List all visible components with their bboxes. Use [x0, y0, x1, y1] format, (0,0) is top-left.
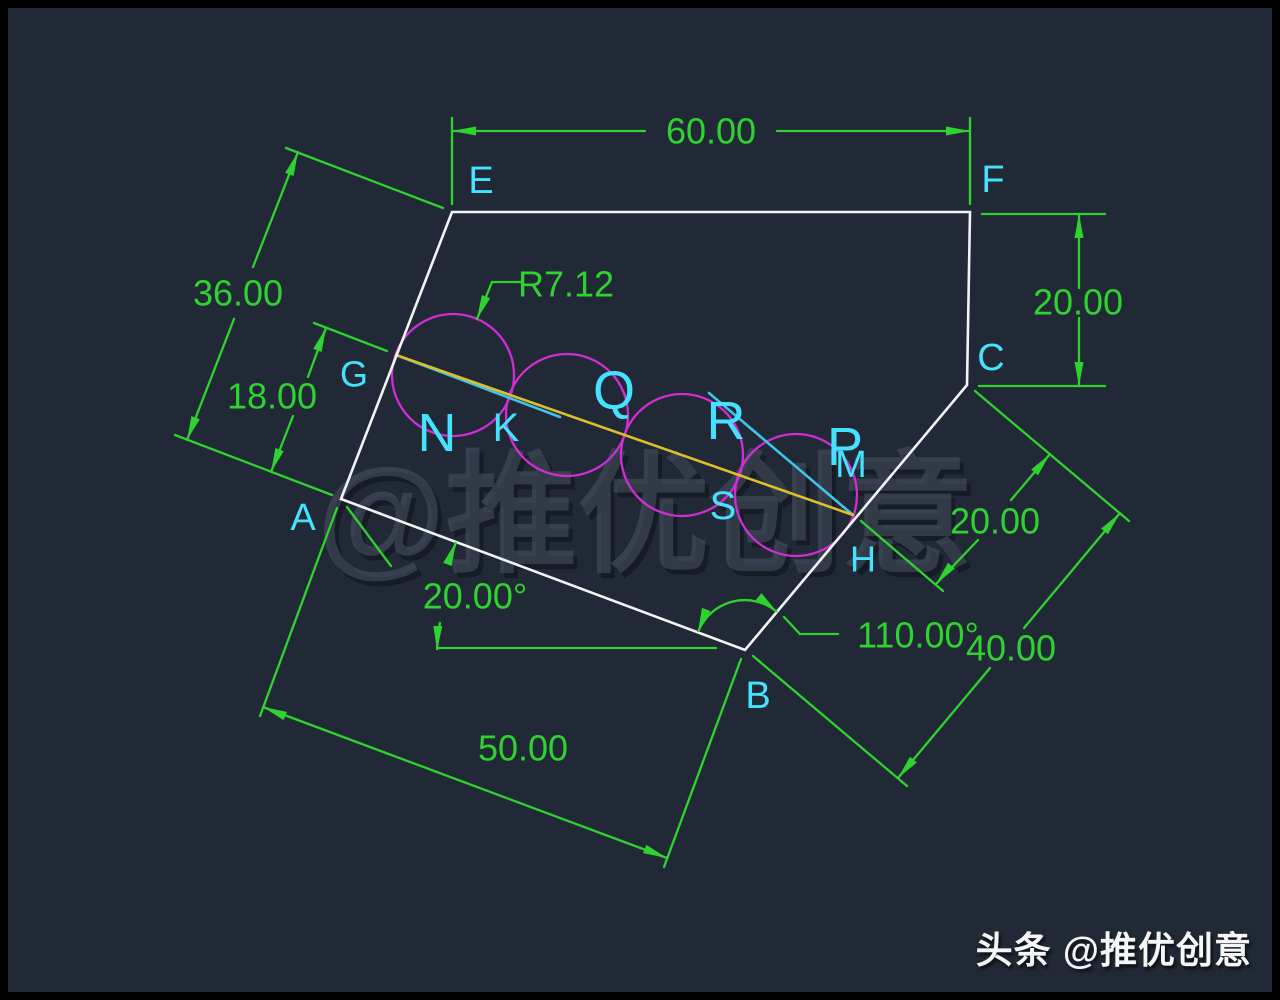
point-label-S: S	[710, 484, 737, 528]
point-label-K: K	[493, 406, 520, 450]
dimension-value: 50.00	[478, 728, 568, 769]
dimension-value: 20.00	[950, 501, 1040, 542]
corner-watermark: 头条 @推优创意	[976, 920, 1252, 974]
point-label-E: E	[468, 160, 493, 202]
cad-drawing-canvas: @推优创意@推优创意60.0036.0018.0050.0020.0020.00…	[0, 0, 1280, 1000]
point-label-B: B	[745, 675, 770, 717]
dimension-value: 20.00°	[423, 576, 527, 617]
point-label-A: A	[290, 497, 316, 539]
dimension-value: 60.00	[666, 111, 756, 152]
dimension-value: 18.00	[227, 376, 317, 417]
point-label-R: R	[707, 391, 746, 451]
cad-screenshot: @推优创意@推优创意60.0036.0018.0050.0020.0020.00…	[0, 0, 1280, 1000]
point-label-N: N	[418, 403, 457, 463]
dimension-value: 36.00	[193, 273, 283, 314]
point-label-H: H	[850, 539, 876, 580]
point-label-Q: Q	[593, 361, 635, 421]
dimension-value: 110.00°	[857, 615, 979, 656]
dimension-value: R7.12	[518, 264, 614, 305]
point-label-F: F	[981, 159, 1004, 201]
dimension-value: 20.00	[1033, 282, 1123, 323]
point-label-C: C	[977, 337, 1004, 379]
point-label-M: M	[835, 444, 867, 486]
point-label-G: G	[340, 354, 368, 395]
dimension-value: 40.00	[966, 628, 1056, 669]
